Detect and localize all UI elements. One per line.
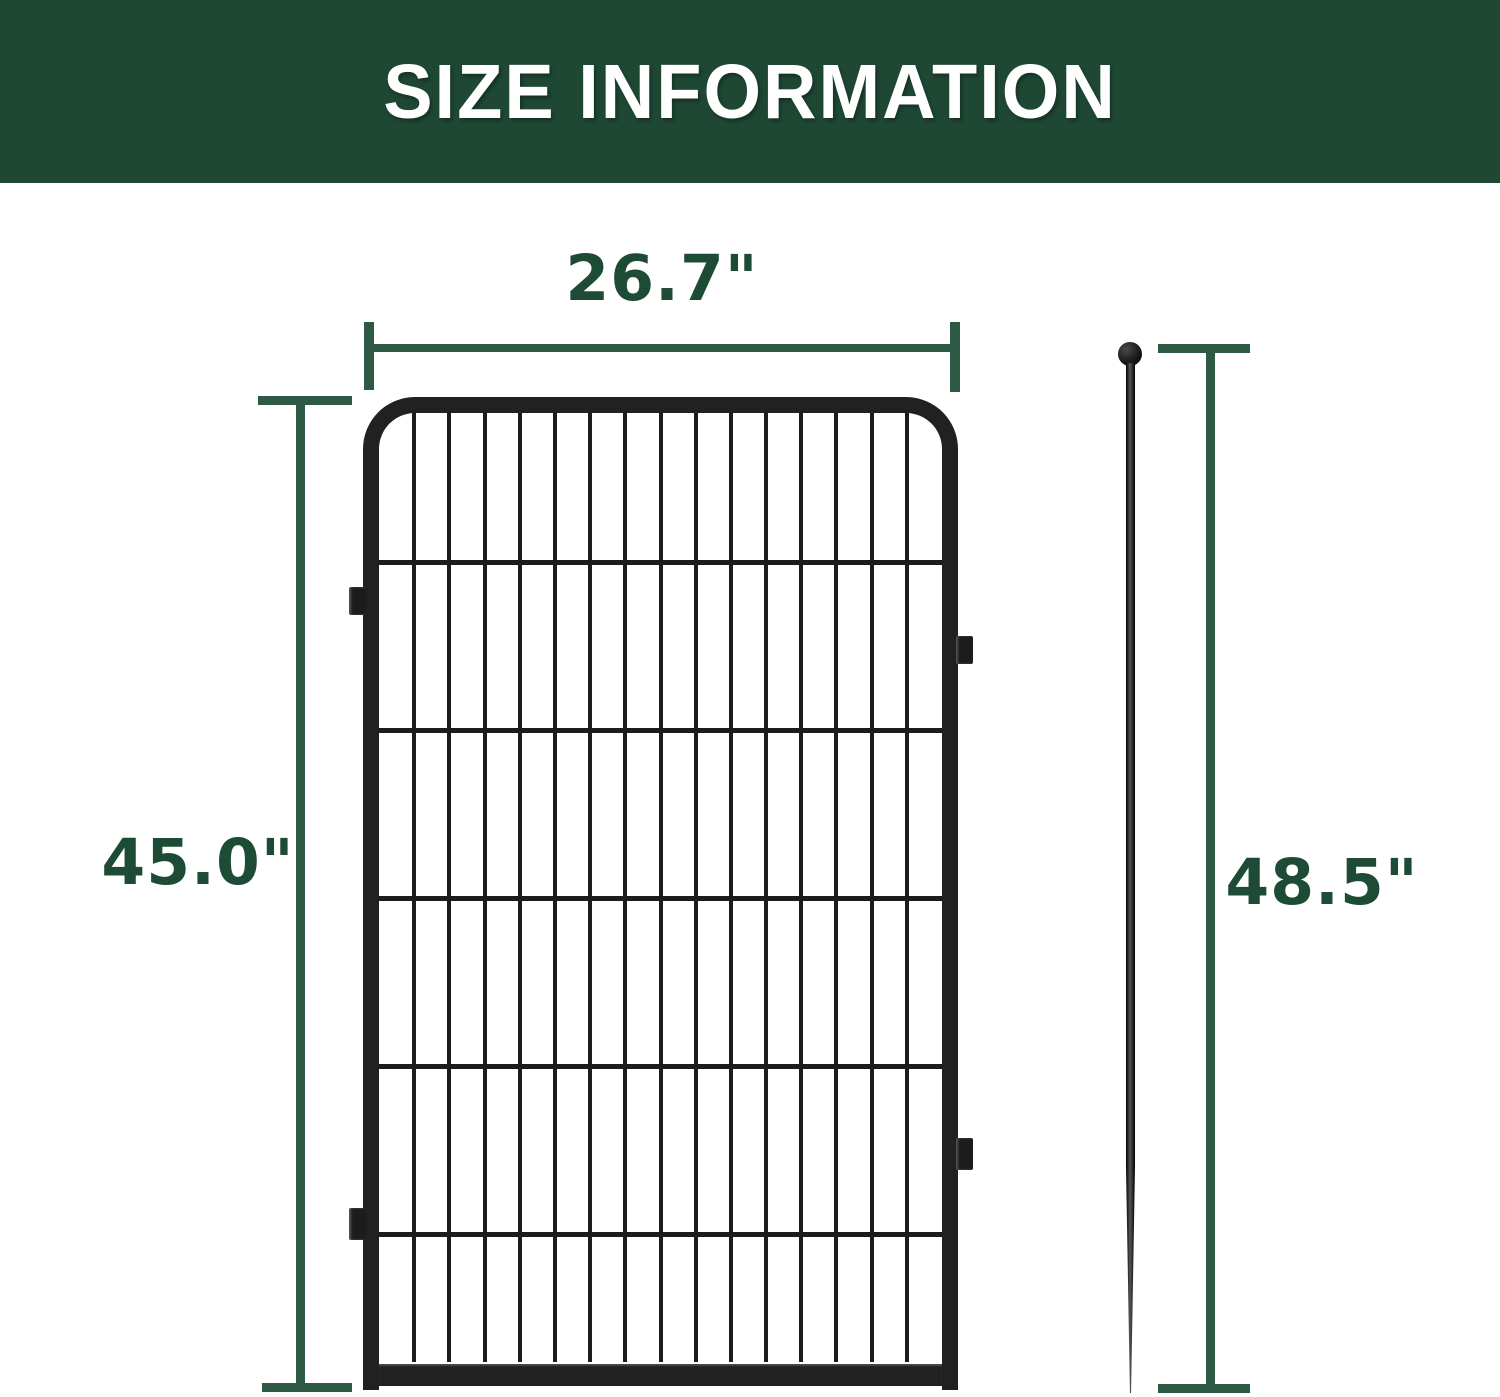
panel-width-tick-left [364, 322, 374, 390]
grid-vertical-wire [483, 413, 487, 1362]
panel-width-dimension-line [369, 344, 955, 352]
stake-height-dimension-line [1206, 346, 1215, 1392]
grid-horizontal-wire [379, 1232, 942, 1237]
grid-vertical-wire [553, 413, 557, 1362]
grid-vertical-wire [659, 413, 663, 1362]
grid-vertical-wire [799, 413, 803, 1362]
grid-vertical-wire [905, 413, 909, 1362]
grid-vertical-wire [764, 413, 768, 1362]
connector-tab-right-top [956, 636, 973, 664]
grid-vertical-wire [870, 413, 874, 1362]
grid-horizontal-wire [379, 560, 942, 565]
stake-height-cap-top [1158, 344, 1250, 353]
grid-horizontal-wire [379, 1064, 942, 1069]
fence-panel [363, 397, 958, 1390]
grid-horizontal-wire [379, 896, 942, 901]
grid-horizontal-wire [379, 728, 942, 733]
grid-vertical-wire [588, 413, 592, 1362]
grid-vertical-wire [518, 413, 522, 1362]
grid-vertical-wire [729, 413, 733, 1362]
stake-height-label: 48.5" [1222, 846, 1422, 919]
connector-tab-left-bottom [349, 1208, 366, 1240]
stake-height-cap-bottom [1158, 1384, 1250, 1393]
panel-height-cap-top [258, 396, 352, 405]
panel-width-label: 26.7" [364, 242, 960, 315]
panel-height-dimension-line [296, 398, 305, 1390]
grid-vertical-wire [694, 413, 698, 1362]
panel-bottom-rail [379, 1364, 942, 1386]
panel-width-tick-right [950, 322, 960, 392]
header-band: SIZE INFORMATION [0, 0, 1500, 183]
page-title: SIZE INFORMATION [383, 47, 1117, 135]
size-information-infographic: SIZE INFORMATION 26.7" 45.0" 48.5" [0, 0, 1500, 1397]
panel-height-cap-bottom [262, 1383, 352, 1392]
grid-vertical-wire [447, 413, 451, 1362]
connector-tab-right-bottom [956, 1138, 973, 1170]
grid-vertical-wire [834, 413, 838, 1362]
connector-tab-left-top [349, 587, 366, 615]
fence-wire-grid [379, 413, 942, 1390]
grid-vertical-wire [412, 413, 416, 1362]
panel-height-label: 45.0" [78, 826, 318, 899]
stake-rod [1126, 363, 1135, 1393]
grid-vertical-wire [623, 413, 627, 1362]
stake-ball-top [1118, 342, 1142, 366]
